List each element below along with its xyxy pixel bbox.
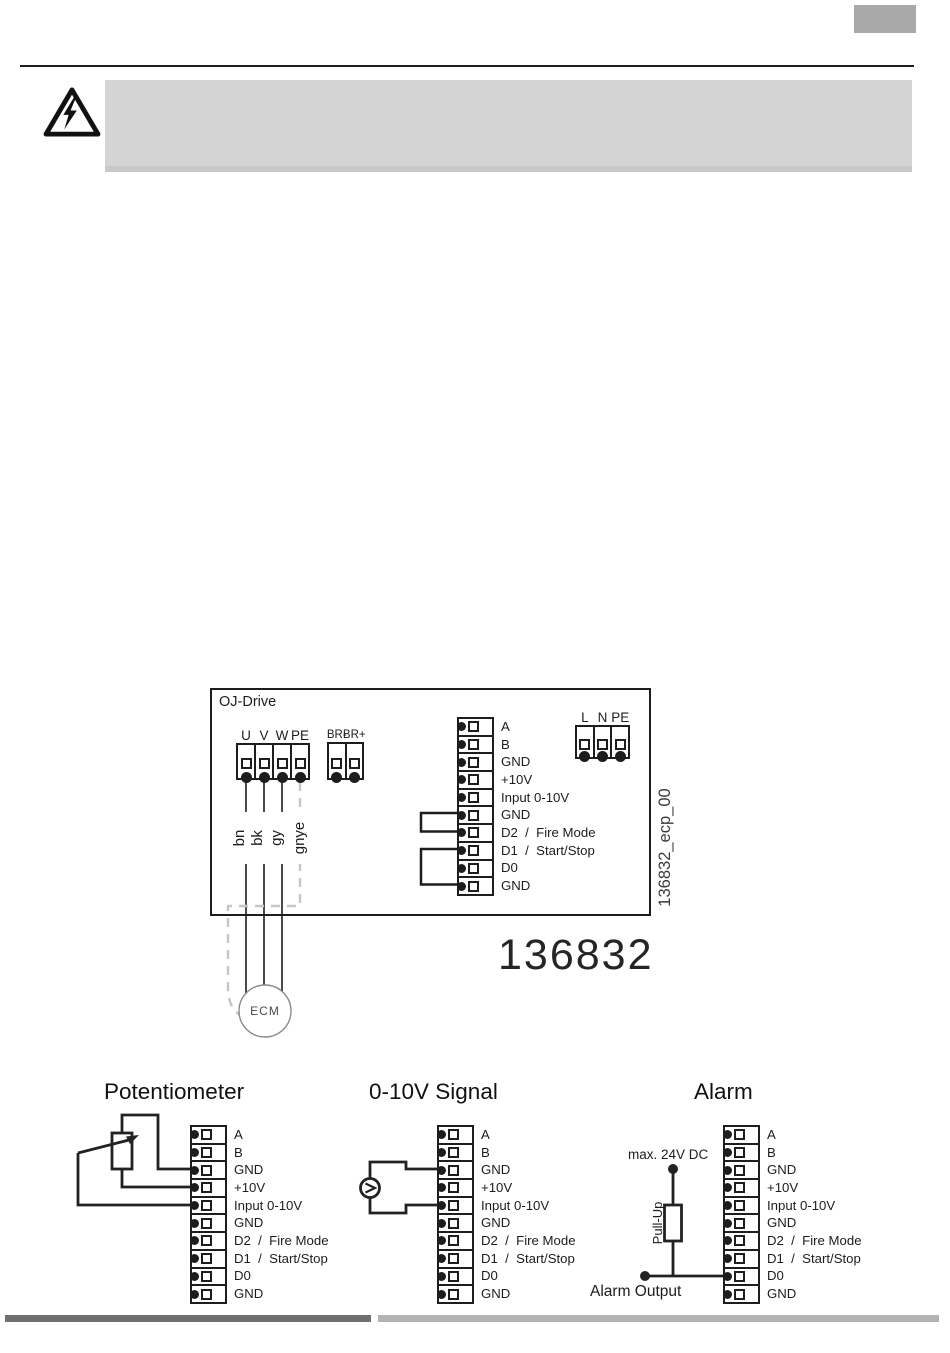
terminal-dot	[723, 1130, 732, 1139]
terminal-label: GND	[481, 1286, 510, 1301]
terminal-label: Input 0-10V	[234, 1198, 302, 1213]
wire-label-bn: bn	[231, 812, 247, 864]
terminal-screw	[734, 1147, 745, 1158]
voltage-source-symbol	[361, 1162, 440, 1213]
terminal-label: GND	[501, 807, 530, 822]
terminal-label: GND	[501, 878, 530, 893]
terminal-screw	[468, 792, 479, 803]
terminal-dot	[295, 772, 306, 783]
terminal-screw	[734, 1200, 745, 1211]
terminal-dot	[723, 1219, 732, 1228]
terminal-screw	[734, 1182, 745, 1193]
terminal-screw	[448, 1200, 459, 1211]
terminal-cell: PE	[290, 743, 310, 780]
terminal-label: D1 / Start/Stop	[501, 843, 595, 858]
terminal-screw	[448, 1289, 459, 1300]
potentiometer-symbol	[78, 1115, 192, 1205]
terminal-dot	[457, 828, 466, 837]
alarm-output-label: Alarm Output	[590, 1283, 681, 1301]
terminal-label: D1 / Start/Stop	[481, 1251, 575, 1266]
terminal-screw	[295, 758, 306, 769]
terminal-screw	[201, 1165, 212, 1176]
terminal-label: A	[234, 1127, 243, 1142]
terminal-label: D2 / Fire Mode	[501, 825, 596, 840]
terminal-screw	[597, 739, 608, 750]
terminal-dot	[457, 740, 466, 749]
terminal-dot	[190, 1183, 199, 1192]
terminal-label: D2 / Fire Mode	[767, 1233, 862, 1248]
terminal-label: B	[481, 1145, 490, 1160]
terminal-dot	[723, 1201, 732, 1210]
terminal-dot	[190, 1130, 199, 1139]
terminal-screw	[468, 863, 479, 874]
terminal-label: Input 0-10V	[481, 1198, 549, 1213]
page-corner-box	[854, 5, 916, 33]
terminal-dot	[437, 1183, 446, 1192]
terminal-screw	[448, 1129, 459, 1140]
terminal-label: A	[501, 719, 510, 734]
terminal-screw	[734, 1271, 745, 1282]
terminal-screw	[734, 1129, 745, 1140]
terminal-screw	[468, 757, 479, 768]
terminal-screw	[468, 721, 479, 732]
terminal-dot	[615, 751, 626, 762]
terminal-screw	[468, 845, 479, 856]
terminal-screw	[201, 1182, 212, 1193]
terminal-label: +10V	[501, 772, 532, 787]
terminal-label: U	[241, 728, 251, 743]
terminal-label: D0	[234, 1269, 251, 1284]
terminal-screw	[615, 739, 626, 750]
terminal-row: GND	[437, 1284, 474, 1304]
terminal-screw	[468, 739, 479, 750]
drawing-number: 136832	[498, 931, 654, 980]
terminal-dot	[190, 1166, 199, 1175]
terminal-row: GND	[190, 1284, 227, 1304]
alarm-supply-label: max. 24V DC	[628, 1147, 708, 1162]
terminal-screw	[468, 774, 479, 785]
terminal-screw	[448, 1182, 459, 1193]
terminal-screw	[201, 1253, 212, 1264]
terminal-dot	[259, 772, 270, 783]
terminal-dot	[349, 772, 360, 783]
terminal-screw	[241, 758, 252, 769]
terminal-dot	[723, 1272, 732, 1281]
wire-label-gy: gy	[268, 812, 284, 864]
terminal-screw	[331, 758, 342, 769]
example-title-alarm: Alarm	[694, 1079, 753, 1105]
terminal-screw	[201, 1147, 212, 1158]
terminal-screw	[734, 1218, 745, 1229]
header-rule	[20, 65, 914, 67]
terminal-label: Input 0-10V	[501, 790, 569, 805]
terminal-dot	[457, 846, 466, 855]
wiring-linework	[0, 0, 950, 1353]
terminal-screw	[349, 758, 360, 769]
terminal-cell: U	[236, 743, 256, 780]
terminal-label: A	[767, 1127, 776, 1142]
terminal-screw	[734, 1253, 745, 1264]
wire-label-gnye: gnye	[291, 812, 307, 864]
terminal-screw	[734, 1165, 745, 1176]
terminal-dot	[457, 758, 466, 767]
terminal-label: D1 / Start/Stop	[767, 1251, 861, 1266]
terminal-label: +10V	[767, 1180, 798, 1195]
terminal-dot	[723, 1166, 732, 1175]
terminal-dot	[597, 751, 608, 762]
terminal-label: GND	[481, 1215, 510, 1230]
footer-bar-dark	[5, 1315, 371, 1322]
terminal-label: D1 / Start/Stop	[234, 1251, 328, 1266]
terminal-label: D0	[501, 861, 518, 876]
terminal-screw	[734, 1235, 745, 1246]
terminal-dot	[723, 1148, 732, 1157]
footer-bar-light	[378, 1315, 939, 1322]
terminal-screw	[579, 739, 590, 750]
terminal-screw	[734, 1289, 745, 1300]
terminal-row: GND	[723, 1284, 760, 1304]
terminal-label: +10V	[234, 1180, 265, 1195]
terminal-label: D0	[767, 1269, 784, 1284]
terminal-dot	[190, 1236, 199, 1245]
terminal-dot	[457, 793, 466, 802]
terminal-label: BR+	[343, 729, 366, 741]
terminal-dot	[437, 1148, 446, 1157]
terminal-dot	[277, 772, 288, 783]
terminal-dot	[190, 1219, 199, 1228]
oj-drive-label: OJ-Drive	[219, 694, 276, 710]
terminal-screw	[277, 758, 288, 769]
terminal-screw	[201, 1271, 212, 1282]
terminal-label: GND	[481, 1162, 510, 1177]
terminal-dot	[437, 1290, 446, 1299]
terminal-label: +10V	[481, 1180, 512, 1195]
terminal-dot	[437, 1166, 446, 1175]
terminal-label: B	[767, 1145, 776, 1160]
terminal-label: D0	[481, 1269, 498, 1284]
terminal-screw	[448, 1253, 459, 1264]
mains-terminal-block: LNPE	[575, 725, 630, 759]
signal-terminal-block: ABGND+10VInput 0-10VGNDD2 / Fire ModeD1 …	[437, 1125, 474, 1304]
terminal-label: PE	[291, 728, 309, 743]
terminal-screw	[201, 1235, 212, 1246]
terminal-screw	[448, 1165, 459, 1176]
ecm-motor-label: ECM	[241, 1004, 289, 1018]
terminal-dot	[190, 1290, 199, 1299]
drawing-file-reference: 136832_ecp_00	[657, 775, 674, 920]
terminal-dot	[437, 1254, 446, 1263]
warning-text-panel	[105, 80, 912, 172]
terminal-screw	[201, 1129, 212, 1140]
brake-terminal-block: BR-BR+	[327, 742, 364, 780]
terminal-cell: W	[272, 743, 292, 780]
electrical-hazard-warning-icon	[43, 86, 101, 138]
terminal-label: B	[501, 737, 510, 752]
terminal-screw	[201, 1289, 212, 1300]
terminal-dot	[190, 1201, 199, 1210]
pullup-resistor-label: Pull-Up	[650, 1193, 664, 1253]
example-title-potentiometer: Potentiometer	[104, 1079, 244, 1105]
terminal-dot	[190, 1254, 199, 1263]
terminal-dot	[457, 722, 466, 731]
terminal-dot	[723, 1254, 732, 1263]
terminal-label: V	[259, 728, 268, 743]
terminal-screw	[448, 1235, 459, 1246]
terminal-screw	[448, 1218, 459, 1229]
terminal-screw	[468, 810, 479, 821]
motor-terminal-block: UVWPE	[236, 743, 310, 780]
terminal-screw	[448, 1147, 459, 1158]
terminal-dot	[241, 772, 252, 783]
terminal-label: GND	[234, 1215, 263, 1230]
terminal-dot	[457, 775, 466, 784]
terminal-screw	[468, 881, 479, 892]
terminal-cell: BR+	[345, 742, 365, 780]
terminal-label: W	[276, 728, 289, 743]
terminal-row: GND	[457, 876, 494, 896]
terminal-label: L	[581, 710, 589, 725]
terminal-dot	[437, 1201, 446, 1210]
terminal-screw	[201, 1218, 212, 1229]
terminal-label: B	[234, 1145, 243, 1160]
terminal-dot	[723, 1290, 732, 1299]
terminal-label: Input 0-10V	[767, 1198, 835, 1213]
potentiometer-terminal-block: ABGND+10VInput 0-10VGNDD2 / Fire ModeD1 …	[190, 1125, 227, 1304]
terminal-label: GND	[234, 1162, 263, 1177]
terminal-label: D2 / Fire Mode	[481, 1233, 576, 1248]
wire-label-bk: bk	[249, 812, 265, 864]
terminal-screw	[259, 758, 270, 769]
terminal-cell: V	[254, 743, 274, 780]
terminal-label: GND	[767, 1286, 796, 1301]
terminal-label: GND	[501, 754, 530, 769]
control-terminal-block: ABGND+10VInput 0-10VGNDD2 / Fire ModeD1 …	[457, 717, 494, 896]
terminal-label: GND	[767, 1162, 796, 1177]
terminal-dot	[723, 1236, 732, 1245]
terminal-screw	[448, 1271, 459, 1282]
terminal-dot	[437, 1219, 446, 1228]
terminal-dot	[457, 811, 466, 820]
terminal-label: GND	[234, 1286, 263, 1301]
example-title-signal: 0-10V Signal	[369, 1079, 498, 1105]
terminal-dot	[457, 882, 466, 891]
alarm-terminal-block: ABGND+10VInput 0-10VGNDD2 / Fire ModeD1 …	[723, 1125, 760, 1304]
terminal-dot	[723, 1183, 732, 1192]
terminal-dot	[437, 1272, 446, 1281]
terminal-dot	[437, 1130, 446, 1139]
terminal-dot	[190, 1148, 199, 1157]
terminal-label: N	[598, 710, 608, 725]
terminal-screw	[201, 1200, 212, 1211]
terminal-screw	[468, 827, 479, 838]
terminal-label: PE	[611, 710, 629, 725]
terminal-dot	[437, 1236, 446, 1245]
terminal-label: D2 / Fire Mode	[234, 1233, 329, 1248]
terminal-dot	[190, 1272, 199, 1281]
terminal-label: A	[481, 1127, 490, 1142]
terminal-label: GND	[767, 1215, 796, 1230]
terminal-cell: PE	[610, 725, 630, 759]
terminal-dot	[457, 864, 466, 873]
